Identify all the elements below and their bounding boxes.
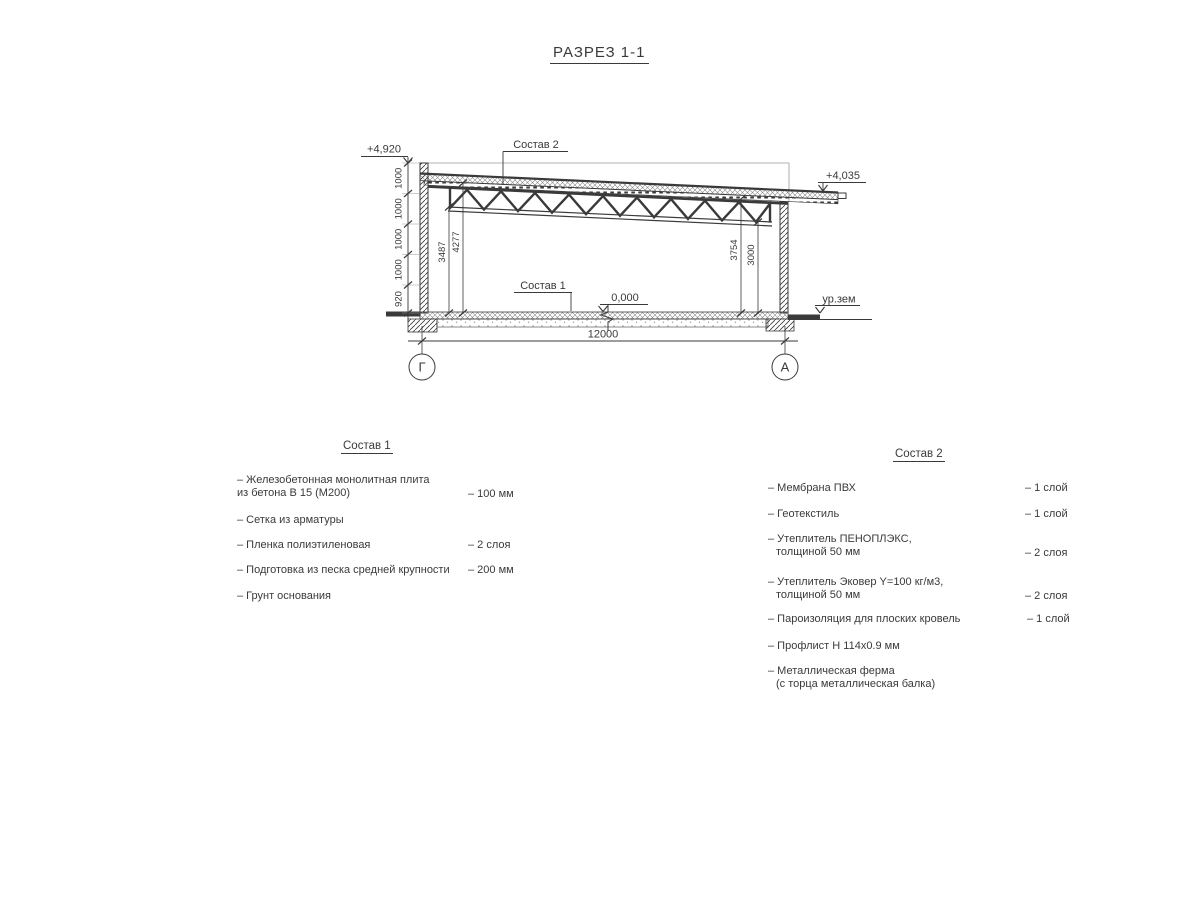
material-quantity: – 1 слой bbox=[1025, 508, 1068, 521]
material-item: – Мембрана ПВХ bbox=[768, 482, 856, 495]
elevation-floor-label: 0,000 bbox=[611, 292, 639, 304]
dim-3487: 3487 bbox=[437, 241, 448, 262]
material-item: – Утеплитель Эковер Y=100 кг/м3,толщиной… bbox=[768, 576, 943, 601]
elevation-top-left bbox=[361, 157, 413, 164]
material-quantity: – 2 слоя bbox=[1025, 590, 1067, 603]
dim-4277: 4277 bbox=[451, 231, 462, 252]
leader-sostav1-label: Состав 1 bbox=[520, 280, 566, 292]
axis-markers: Г А bbox=[409, 354, 798, 380]
material-quantity: – 100 мм bbox=[468, 488, 514, 501]
material-quantity: – 2 слоя bbox=[468, 539, 510, 552]
material-item: – Сетка из арматуры bbox=[237, 514, 344, 527]
roof-edge-cap bbox=[838, 193, 846, 199]
elevation-floor bbox=[599, 305, 649, 312]
dim-3000: 3000 bbox=[746, 244, 757, 265]
leader-sostav2-label: Состав 2 bbox=[513, 139, 559, 151]
wall-right bbox=[780, 202, 788, 313]
apron-left bbox=[386, 312, 420, 317]
dim-chain-left: 1000 1000 1000 1000 920 bbox=[394, 157, 421, 322]
material-item: – Пароизоляция для плоских кровель bbox=[768, 613, 960, 626]
axis-left-label: Г bbox=[418, 360, 425, 375]
material-item: – Геотекстиль bbox=[768, 508, 839, 521]
material-item: – Подготовка из песка средней крупности bbox=[237, 564, 450, 577]
elevation-top-left-label: +4,920 bbox=[367, 144, 401, 156]
dim-1000-2: 1000 bbox=[394, 198, 405, 219]
material-item: – Профлист Н 114х0.9 мм bbox=[768, 640, 900, 653]
sand-layer bbox=[437, 319, 768, 327]
wall-left bbox=[420, 163, 428, 313]
material-quantity: – 1 слой bbox=[1027, 613, 1070, 626]
material-item: – Утеплитель ПЕНОПЛЭКС,толщиной 50 мм bbox=[768, 533, 912, 558]
dim-1000-1: 1000 bbox=[394, 168, 405, 189]
dim-1000-3: 1000 bbox=[394, 229, 405, 250]
dim-span-label: 12000 bbox=[588, 329, 619, 341]
material-quantity: – 1 слой bbox=[1025, 482, 1068, 495]
elevation-top-right bbox=[818, 183, 866, 192]
material-quantity: – 2 слоя bbox=[1025, 547, 1067, 560]
dim-1000-4: 1000 bbox=[394, 259, 405, 280]
sostav2-title: Состав 2 bbox=[893, 448, 945, 462]
elevation-ground bbox=[815, 306, 860, 314]
elevation-top-right-label: +4,035 bbox=[826, 170, 860, 182]
page-title: РАЗРЕЗ 1-1 bbox=[550, 44, 649, 64]
leader-sostav1 bbox=[514, 293, 572, 312]
dim-3754: 3754 bbox=[729, 239, 740, 260]
foundation-right bbox=[766, 319, 794, 331]
material-item: – Грунт основания bbox=[237, 590, 331, 603]
material-item: – Металлическая ферма(с торца металличес… bbox=[768, 665, 935, 690]
foundation-left bbox=[408, 319, 437, 332]
section-drawing: 1000 1000 1000 1000 920 3487 4277 3754 3… bbox=[340, 120, 900, 410]
material-item: – Железобетонная монолитная плитаиз бето… bbox=[237, 474, 430, 499]
floor-assembly bbox=[386, 305, 872, 332]
sostav1-title: Состав 1 bbox=[341, 440, 393, 454]
drawing-sheet: РАЗРЕЗ 1-1 bbox=[0, 0, 1200, 900]
material-quantity: – 200 мм bbox=[468, 564, 514, 577]
dim-920: 920 bbox=[394, 291, 405, 307]
material-item: – Пленка полиэтиленовая bbox=[237, 539, 370, 552]
elevation-ground-label: ур.зем bbox=[822, 294, 855, 306]
axis-right-label: А bbox=[781, 360, 790, 375]
